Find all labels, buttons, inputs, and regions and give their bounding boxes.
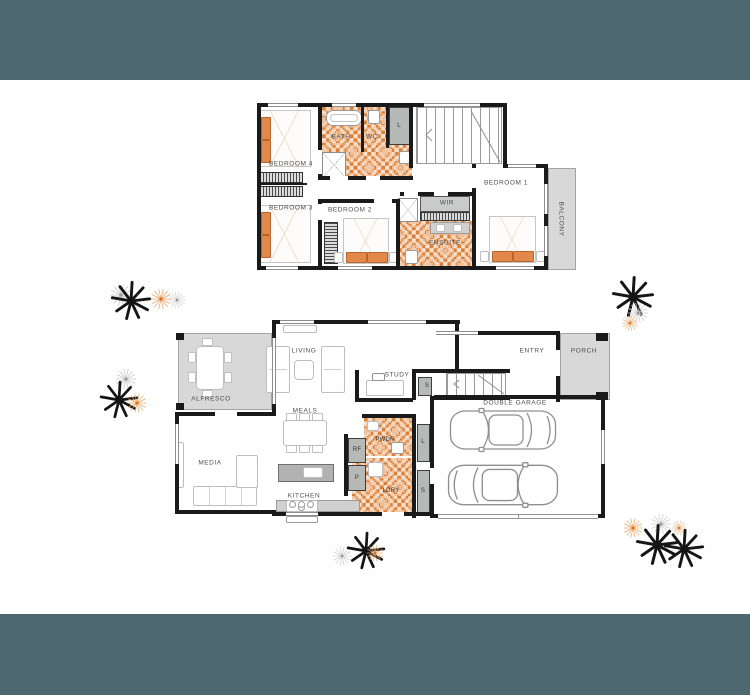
window [544,184,548,214]
room-label-media: MEDIA [198,460,221,467]
bedroom2-nightstand-1 [334,252,343,263]
wall [362,414,416,418]
room-label-bedroom1: BEDROOM 1 [484,180,528,187]
bedroom3-robe-hatch [259,186,303,197]
wall [257,103,261,270]
room-label-powder: PWDR [375,437,394,443]
meals-chair [299,445,310,453]
bedroom4-pillow-1 [261,117,271,140]
meals-table [283,420,327,446]
bath-shower [322,152,346,178]
tv-unit [283,325,317,333]
bedroom3-pillow-1 [261,212,271,235]
meals-chair [312,445,323,453]
bottom-color-band [0,614,750,695]
door-opening [374,199,392,203]
bedroom1-nightstand-1 [480,251,489,262]
plant-icon [361,539,389,567]
bedroom1-pillow-2 [513,251,534,262]
ensuite-shower [398,198,418,222]
room-label-double-garage: DOUBLE GARAGE [483,400,547,407]
wir-robe-hatch [420,212,470,221]
door-opening [366,176,380,180]
living-sofa-right [321,346,345,393]
car [447,460,559,510]
window [175,424,179,464]
door-opening [318,150,322,174]
plant-icon [617,310,643,336]
label-linen-lower: L [421,439,425,445]
washing-machine [368,462,383,477]
porch-post [596,333,608,341]
room-label-study: STUDY [385,372,410,379]
room-label-kitchen: KITCHEN [288,493,320,500]
alfresco-chair [188,372,196,383]
sliding-door [272,338,276,404]
ensuite-toilet [405,250,418,264]
wall [175,510,276,514]
wall [355,398,413,402]
door-opening [382,512,404,516]
wall [412,369,510,373]
room-label-laundry: LDRY [383,488,400,494]
room-label-porch: PORCH [571,348,597,355]
meals-chair [286,445,297,453]
alfresco-chair [188,352,196,363]
door-opening [434,192,448,196]
ensuite-basin-2 [453,224,462,232]
plant-icon [662,527,706,571]
bedroom3-pillow-2 [261,235,271,258]
alfresco-chair [224,352,232,363]
door-opening [472,168,476,188]
stairs-upper-marks [416,107,502,164]
robe-divider-wall [257,183,307,185]
door-opening [215,412,237,416]
bedroom2-pillow-2 [367,252,388,263]
door-opening [404,192,418,196]
window [436,331,478,335]
window [424,103,480,107]
window [544,226,548,256]
media-sofa [193,486,257,506]
window [338,266,372,270]
front-door-opening [556,350,560,376]
door-opening [330,176,348,180]
room-label-living: LIVING [292,348,317,355]
room-label-bedroom4: BEDROOM 4 [269,161,313,168]
bedroom4-robe-hatch [259,172,303,183]
label-fridge: RF [353,447,361,453]
wall [503,103,507,168]
powder-toilet [391,442,404,454]
bathtub-inner [330,114,358,122]
powder-basin [367,421,379,431]
room-label-bedroom2: BEDROOM 2 [328,207,372,214]
plant-icon [163,286,191,314]
bedroom1-pillow-1 [492,251,513,262]
wall [412,369,416,400]
floor-plan-canvas: BEDROOM 4 BATH WC L BEDROOM 1 BALCONY BE… [0,0,750,695]
window [280,320,314,324]
room-label-ensuite: ENSUITE [429,240,461,247]
window [332,103,356,107]
window [268,103,298,107]
alfresco-table [196,346,224,390]
window [508,164,536,168]
porch-area [560,333,610,400]
room-label-balcony: BALCONY [558,202,565,237]
window [601,430,605,464]
wall [396,199,400,266]
wall [409,103,413,168]
cooktop-burner [298,501,305,508]
media-sofa-corner [236,455,258,488]
wall [386,107,389,148]
study-monitor [372,373,385,381]
room-label-meals: MEALS [293,408,318,415]
plant-icon [121,387,153,419]
wall [412,414,416,518]
garage-door [438,514,598,519]
window [368,320,426,324]
alfresco-chair [202,338,213,346]
wall [344,434,348,496]
room-label-wc: WC [366,134,378,141]
bathtub [326,110,362,126]
room-label-alfresco: ALFRESCO [191,396,230,403]
alfresco-post [176,403,184,410]
alfresco-post [176,333,184,340]
top-color-band [0,0,750,80]
room-label-bath: BATH [331,134,350,141]
wall [361,107,364,152]
living-sofa-left [266,346,290,393]
wc-toilet [368,110,380,124]
wall [455,320,459,373]
ensuite-basin-1 [436,224,445,232]
study-desk [366,380,404,396]
kitchen-sink [303,467,323,478]
window [496,266,534,270]
window [286,512,318,516]
porch-post [596,392,608,400]
label-pantry: P [355,475,359,481]
cooktop-burner [307,501,314,508]
wall [430,400,434,518]
door-opening [318,204,322,220]
alfresco-chair [224,372,232,383]
door-opening [430,468,434,484]
label-under-stair-store: S [425,383,429,389]
window [266,266,298,270]
kitchen-window-box [286,516,318,523]
stairs-lower-marks [446,373,506,396]
room-label-entry: ENTRY [520,348,545,355]
room-label-bedroom3: BEDROOM 3 [269,205,313,212]
room-label-linen-upper: L [397,123,401,129]
cooktop-burner [289,501,296,508]
room-label-wir: WIR [440,200,454,207]
coffee-table [294,360,314,380]
car [447,406,559,454]
label-store: S [421,488,425,494]
bedroom2-pillow-1 [346,252,367,263]
